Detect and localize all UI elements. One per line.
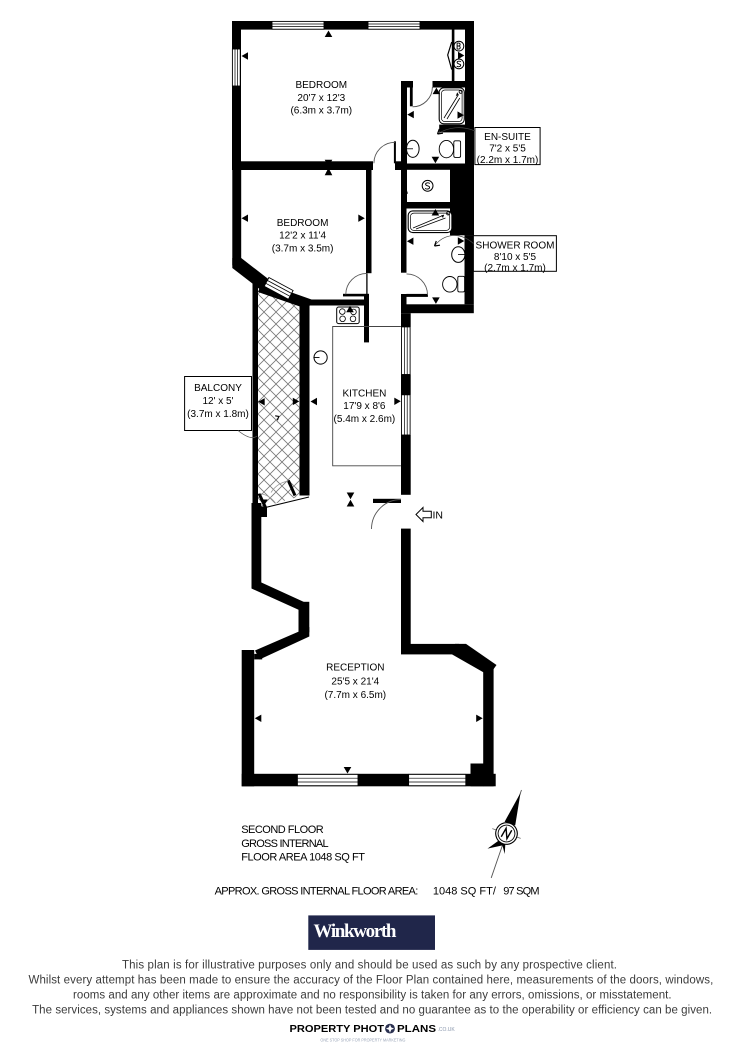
- svg-text:EN-SUITE: EN-SUITE: [484, 132, 531, 143]
- svg-text:(6.3m x 3.7m): (6.3m x 3.7m): [290, 105, 352, 116]
- svg-text:APPROX. GROSS INTERNAL FLOOR A: APPROX. GROSS INTERNAL FLOOR AREA:: [215, 886, 419, 898]
- svg-text:12'2 x 11'4: 12'2 x 11'4: [279, 231, 326, 242]
- svg-text:(2.2m x 1.7m): (2.2m x 1.7m): [477, 155, 539, 166]
- svg-text:GROSS INTERNAL: GROSS INTERNAL: [241, 838, 328, 850]
- svg-text:rooms and any other items are: rooms and any other items are approximat…: [73, 990, 672, 1002]
- svg-text:PROPERTY PHOT: PROPERTY PHOT: [290, 1023, 385, 1035]
- svg-text:17'9 x 8'6: 17'9 x 8'6: [343, 401, 386, 412]
- svg-text:IN: IN: [433, 510, 444, 522]
- svg-text:20'7 x 12'3: 20'7 x 12'3: [297, 93, 345, 104]
- svg-text:ONE STOP SHOP FOR PROPERTY MAR: ONE STOP SHOP FOR PROPERTY MARKETING: [320, 1038, 405, 1043]
- svg-text:(5.4m x 2.6m): (5.4m x 2.6m): [334, 414, 396, 425]
- svg-text:BEDROOM: BEDROOM: [295, 80, 347, 91]
- svg-text:PLANS: PLANS: [397, 1023, 436, 1035]
- svg-text:.CO.UK: .CO.UK: [438, 1027, 456, 1033]
- svg-text:SHOWER ROOM: SHOWER ROOM: [476, 241, 555, 252]
- svg-text:This plan is for illustrative: This plan is for illustrative purposes o…: [122, 959, 617, 971]
- svg-text:(3.7m x 1.8m): (3.7m x 1.8m): [187, 409, 249, 420]
- svg-text:The services, systems and appl: The services, systems and appliances sho…: [32, 1005, 712, 1017]
- svg-text:FLOOR AREA 1048 SQ FT: FLOOR AREA 1048 SQ FT: [241, 852, 365, 864]
- svg-text:Winkworth: Winkworth: [314, 921, 397, 942]
- svg-text:(7.7m x 6.5m): (7.7m x 6.5m): [324, 690, 386, 701]
- svg-text:KITCHEN: KITCHEN: [342, 388, 386, 399]
- svg-text:8'10 x 5'5: 8'10 x 5'5: [494, 252, 537, 263]
- svg-text:SECOND FLOOR: SECOND FLOOR: [241, 824, 324, 836]
- svg-text:(3.7m x 3.5m): (3.7m x 3.5m): [272, 243, 334, 254]
- svg-text:25'5 x 21'4: 25'5 x 21'4: [331, 676, 379, 687]
- svg-text:1048 SQ FT/: 1048 SQ FT/: [433, 886, 497, 898]
- svg-text:Whilst every attempt has been: Whilst every attempt has been made to en…: [29, 974, 714, 986]
- svg-text:RECEPTION: RECEPTION: [326, 662, 384, 673]
- svg-text:BEDROOM: BEDROOM: [277, 218, 329, 229]
- svg-text:12' x 5': 12' x 5': [202, 396, 233, 407]
- svg-text:97 SQM: 97 SQM: [503, 886, 539, 898]
- svg-text:BALCONY: BALCONY: [194, 383, 242, 394]
- svg-text:(2.7m x 1.7m): (2.7m x 1.7m): [484, 263, 546, 274]
- svg-text:7'2 x 5'5: 7'2 x 5'5: [489, 144, 526, 155]
